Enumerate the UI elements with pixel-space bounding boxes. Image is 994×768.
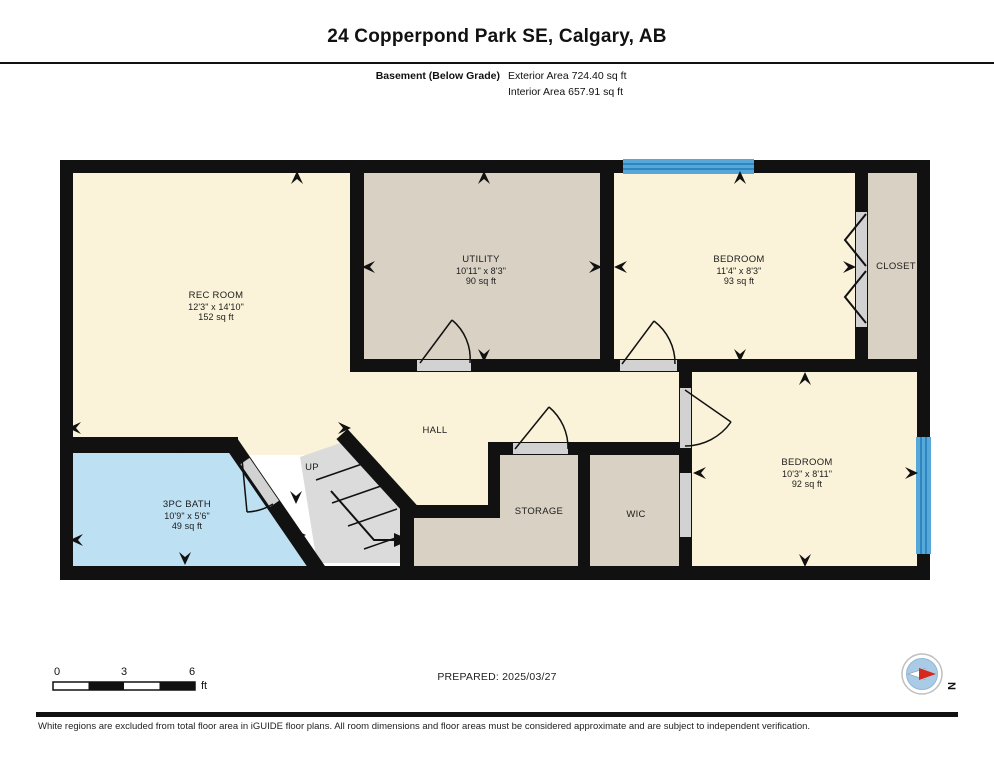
room-label-utility: UTILITY10'11" x 8'3"90 sq ft (456, 255, 506, 287)
scale-bar (53, 682, 195, 690)
room-label-3pc-bath: 3PC BATH10'9" x 5'6"49 sq ft (163, 500, 211, 532)
room-label-storage: STORAGE (515, 507, 563, 518)
floorplan-page: 24 Copperpond Park SE, Calgary, AB Basem… (0, 0, 994, 768)
window-right (916, 437, 931, 554)
room-label-rec-room: REC ROOM12'3" x 14'10"152 sq ft (188, 291, 244, 323)
window-top (623, 159, 754, 174)
storage-door-gap (513, 443, 568, 454)
room-label-bedroom: BEDROOM10'3" x 8'11"92 sq ft (781, 458, 832, 490)
room-label-wic: WIC (626, 510, 645, 521)
scale-unit-label: ft (201, 680, 207, 692)
wic-opening-gap (680, 473, 691, 537)
prepared-date-text: PREPARED: 2025/03/27 (347, 671, 647, 683)
room-label-hall: HALL (423, 426, 448, 437)
room-label-bedroom: BEDROOM11'4" x 8'3"93 sq ft (713, 255, 764, 287)
room-label-closet: CLOSET (876, 262, 916, 273)
scale-label-3: 3 (117, 666, 131, 678)
bedroom2-door-gap (680, 388, 691, 448)
footer-divider (36, 712, 958, 717)
scale-label-0: 0 (50, 666, 64, 678)
utility-door-gap (417, 360, 471, 371)
floor-plan-drawing: N (0, 0, 994, 768)
storage-upper-fill (494, 448, 585, 510)
scale-label-6: 6 (185, 666, 199, 678)
footer-disclaimer-text: White regions are excluded from total fl… (38, 721, 968, 732)
room-label-up: UP (305, 463, 319, 474)
closet-door-gap (856, 212, 867, 327)
compass-north-icon: N (902, 654, 957, 694)
dimension-arrow-down (290, 491, 302, 504)
compass-n-label: N (945, 682, 957, 690)
bedroom1-door-gap (620, 360, 677, 371)
